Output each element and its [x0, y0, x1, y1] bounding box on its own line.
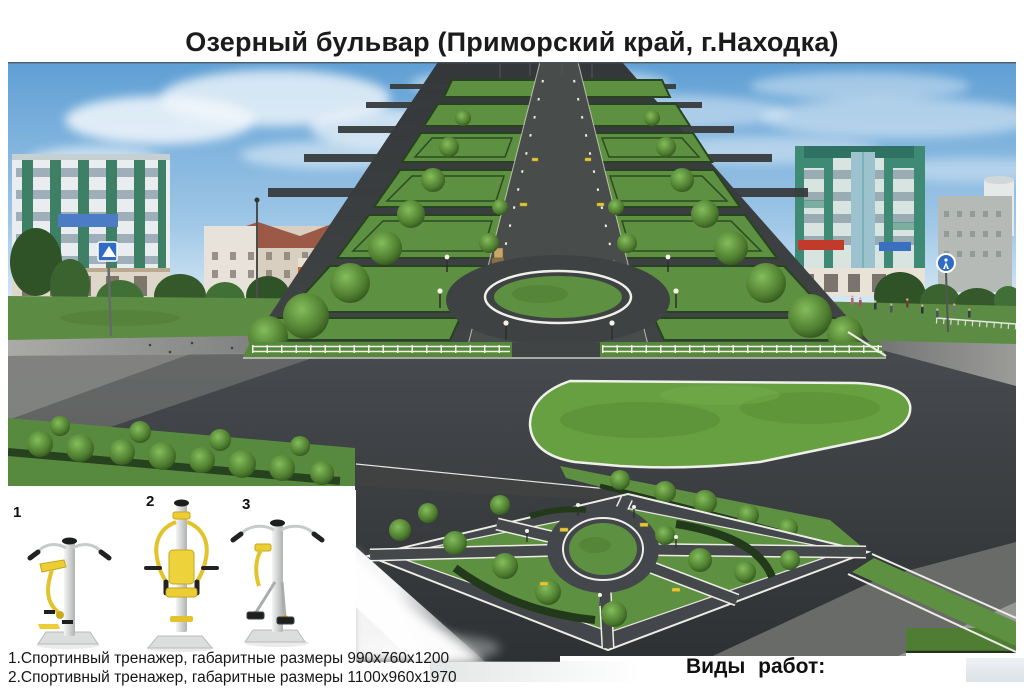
caption-line-1: 1.Спортинвый тренажер, габаритные размер… — [8, 650, 457, 669]
equipment-captions: 1.Спортинвый тренажер, габаритные размер… — [8, 650, 457, 688]
frame-top-line — [8, 62, 1016, 63]
exercise-machine-2-figure — [130, 488, 235, 656]
bottom-right-chip — [966, 658, 1024, 682]
exercise-machine-3-figure — [225, 498, 330, 650]
caption-line-2: 2.Спортивный тренажер, габаритные размер… — [8, 669, 457, 688]
page-title: Озерный бульвар (Приморский край, г.Нахо… — [0, 27, 1024, 58]
bottom-gray-streak — [430, 661, 640, 682]
works-label: Виды работ: — [686, 655, 825, 679]
exercise-machine-1-figure — [18, 512, 123, 652]
